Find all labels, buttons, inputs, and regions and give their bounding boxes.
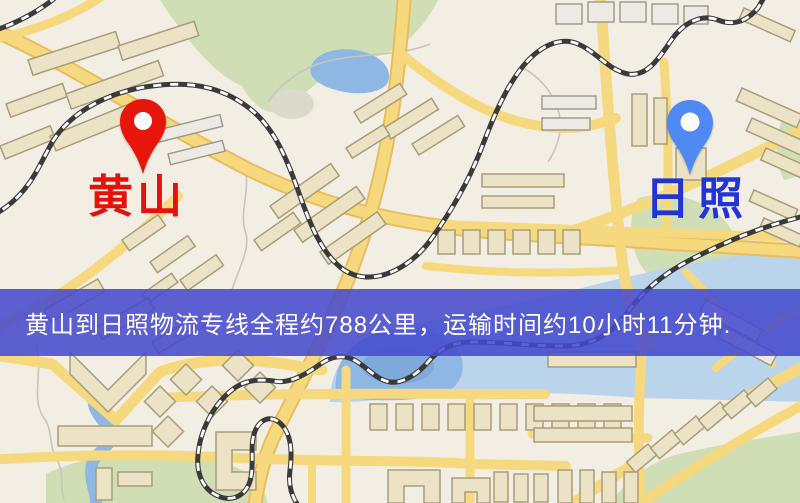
destination-marker[interactable] (666, 99, 714, 177)
origin-pin-icon[interactable] (119, 98, 167, 176)
origin-pin-shape (120, 99, 166, 174)
destination-pin-hole (681, 113, 700, 132)
origin-marker[interactable] (119, 98, 167, 176)
map-canvas[interactable] (0, 0, 800, 503)
destination-pin-icon[interactable] (666, 99, 714, 177)
origin-pin-hole (134, 112, 152, 130)
route-info-banner: 黄山到日照物流专线全程约788公里，运输时间约10小时11分钟. (0, 289, 800, 356)
destination-pin-shape (667, 100, 713, 175)
destination-label: 日照 (645, 176, 751, 221)
map-view: 黄山 日照 黄山到日照物流专线全程约788公里，运输时间约10小时11分钟. (0, 0, 800, 503)
origin-label: 黄山 (88, 174, 186, 219)
route-info-text: 黄山到日照物流专线全程约788公里，运输时间约10小时11分钟. (25, 289, 731, 356)
